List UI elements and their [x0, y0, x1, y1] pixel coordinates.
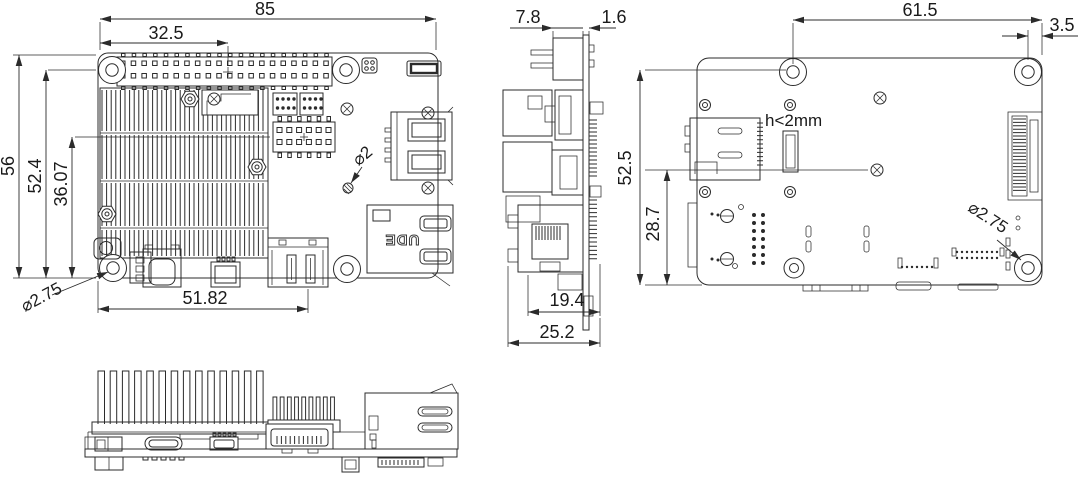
- height-note-text: h<2mm: [765, 111, 822, 130]
- dim-51_82: 51.82: [98, 281, 308, 313]
- pcb-edge-front: [85, 449, 457, 457]
- dim-dia2-text: ⌀2: [349, 142, 376, 169]
- usb-side: [545, 90, 583, 140]
- dim-51_82-text: 51.82: [182, 288, 227, 308]
- front-view: [85, 371, 458, 472]
- poe-header: [362, 58, 377, 73]
- dim-52_5-text: 52.5: [615, 150, 635, 185]
- gpio-header-side: [531, 38, 594, 80]
- dim-3_5-text: 3.5: [1049, 15, 1074, 35]
- dim-32_5-text: 32.5: [148, 23, 183, 43]
- flex-connector: [783, 131, 798, 172]
- ethernet-marking-text: UDE: [385, 231, 420, 248]
- dim-36_07: 36.07: [51, 133, 308, 278]
- sd-screw: [700, 187, 711, 198]
- dim-3_5: 3.5: [1002, 15, 1078, 60]
- usb-c-port-front: [145, 437, 182, 450]
- mounting-hole: [1015, 59, 1042, 86]
- dim-56-text: 56: [0, 156, 18, 176]
- sd-screw: [785, 187, 796, 198]
- dim-28_7: 28.7: [643, 170, 868, 285]
- dim-28_7-text: 28.7: [643, 206, 663, 241]
- camera-connector: [407, 61, 441, 76]
- micro-usb-port-top: [211, 257, 240, 287]
- dim-36_07-text: 36.07: [51, 161, 71, 206]
- mounting-hole: [333, 57, 360, 84]
- mid-connector-side: [552, 150, 583, 195]
- mounting-hole: [99, 57, 126, 84]
- board-dimension-drawing: UDE: [0, 0, 1080, 478]
- dim-52_4-text: 52.4: [25, 158, 45, 193]
- sd-screw: [785, 100, 796, 111]
- ethernet-port-top: UDE: [367, 205, 453, 286]
- standoff: [98, 206, 116, 222]
- dim-61_5: 61.5: [793, 0, 1042, 64]
- dim-dia2_75-top: ⌀2.75: [18, 272, 108, 316]
- dim-1_6-text: 1.6: [601, 7, 626, 27]
- heatsink-top: [98, 88, 268, 258]
- plain-hole: [784, 258, 804, 278]
- ethernet-port-front: [365, 384, 458, 449]
- dim-85-text: 85: [255, 0, 275, 19]
- board-outline-bottom: [697, 58, 1042, 285]
- top-view: UDE: [0, 0, 453, 316]
- standoff: [181, 91, 199, 107]
- header-2x4-b: [300, 93, 323, 115]
- gpio-header: [117, 54, 332, 90]
- edge-connector-left: [688, 203, 697, 267]
- standoff: [248, 159, 266, 175]
- dim-dia2_75-top-text: ⌀2.75: [18, 279, 65, 316]
- dim-25_2-text: 25.2: [539, 322, 574, 342]
- hdmi-port-top: [268, 238, 328, 287]
- usb-ports-top: [385, 107, 453, 185]
- header-2x4-a: [273, 93, 297, 115]
- dimension-drawing-page: UDE: [0, 0, 1080, 478]
- dim-dia2_75-bottom-text: ⌀2.75: [965, 198, 1012, 238]
- dim-dia2_75-bottom: ⌀2.75: [965, 198, 1021, 260]
- under-board-components: [95, 457, 443, 472]
- bottom-edge-footprints: [803, 282, 998, 291]
- ethernet-side: [508, 205, 583, 290]
- dim-56: 56: [0, 55, 96, 278]
- gpio-footprint: [1008, 112, 1042, 200]
- dim-19_4-text: 19.4: [549, 290, 584, 310]
- dim-7_8-text: 7.8: [515, 7, 540, 27]
- micro-hdmi-port-front: [210, 433, 238, 450]
- dim-1_6: 1.6: [589, 7, 627, 28]
- pcb-edge: [583, 35, 589, 330]
- bottom-view: h<2mm 61.5 3.5 52.5 28.7 ⌀2.75: [615, 0, 1078, 291]
- sd-screw: [700, 100, 711, 111]
- mounting-hole: [1015, 255, 1042, 282]
- dim-61_5-text: 61.5: [902, 0, 937, 20]
- mounting-hole: [334, 256, 361, 283]
- dim-dia2: ⌀2: [349, 142, 376, 183]
- side-view: 7.8 1.6 19.4 25.2: [503, 7, 627, 347]
- via-hole: [343, 183, 353, 194]
